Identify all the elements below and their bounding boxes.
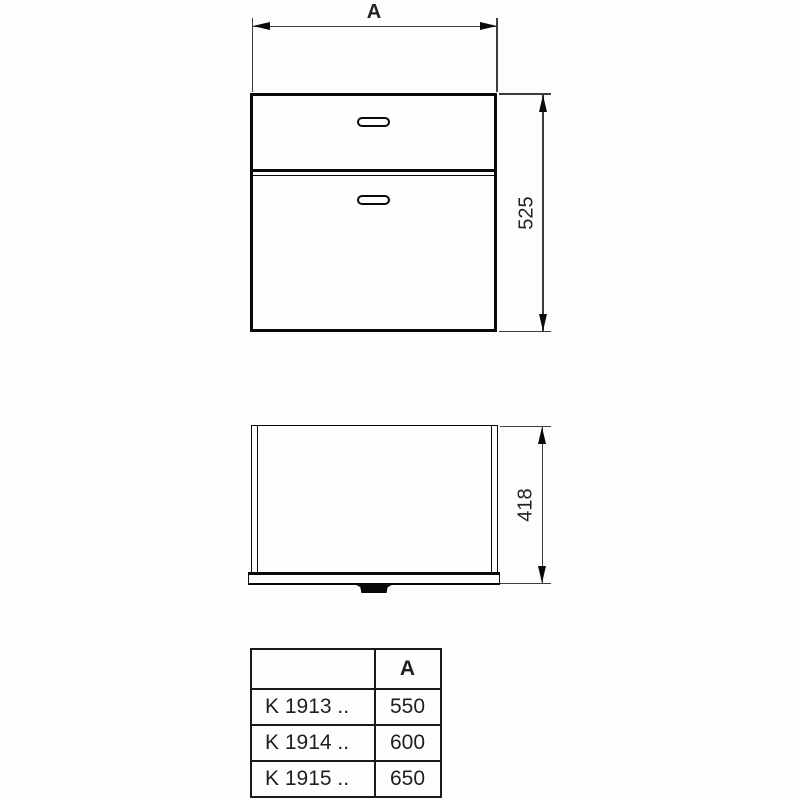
top-view-left-panel-line bbox=[257, 426, 259, 574]
technical-drawing: A 525 418 A K 1913 .. bbox=[0, 0, 800, 800]
value-cell: 600 bbox=[375, 725, 441, 761]
table-row: K 1914 .. 600 bbox=[251, 725, 441, 761]
arrowhead-left-icon bbox=[253, 22, 270, 30]
height-dimension-line bbox=[542, 95, 543, 331]
height-dimension-label: 525 bbox=[516, 196, 539, 229]
width-extension-line-left bbox=[252, 18, 253, 92]
drawer-divider-line bbox=[252, 169, 495, 172]
model-cell: K 1915 .. bbox=[251, 761, 375, 797]
width-dimension-label: A bbox=[367, 1, 381, 24]
top-view-front-panel bbox=[248, 572, 500, 585]
spec-table-header-model bbox=[251, 649, 375, 689]
table-row: K 1915 .. 650 bbox=[251, 761, 441, 797]
value-cell: 650 bbox=[375, 761, 441, 797]
model-cell: K 1914 .. bbox=[251, 725, 375, 761]
table-header-row: A bbox=[251, 649, 441, 689]
spec-table-header-a: A bbox=[375, 649, 441, 689]
front-view bbox=[250, 93, 497, 332]
top-view bbox=[251, 425, 498, 575]
top-view-right-panel-line bbox=[491, 426, 493, 574]
value-cell: 550 bbox=[375, 689, 441, 725]
table-row: K 1913 .. 550 bbox=[251, 689, 441, 725]
spec-table: A K 1913 .. 550 K 1914 .. 600 K 1915 .. … bbox=[250, 648, 442, 798]
width-dimension-line bbox=[253, 26, 497, 27]
drawer-handle-top bbox=[357, 117, 390, 127]
arrowhead-up-icon bbox=[539, 95, 547, 112]
arrowhead-right-icon bbox=[480, 22, 497, 30]
arrowhead-down-icon bbox=[538, 566, 546, 583]
model-cell: K 1913 .. bbox=[251, 689, 375, 725]
top-view-handle-tab bbox=[356, 585, 393, 594]
width-extension-line-right bbox=[496, 18, 497, 92]
drawer-handle-bottom bbox=[357, 195, 390, 205]
depth-dimension-line bbox=[542, 427, 543, 583]
arrowhead-down-icon bbox=[539, 314, 547, 331]
depth-extension-line-bottom bbox=[500, 583, 551, 584]
arrowhead-up-icon bbox=[538, 427, 546, 444]
depth-dimension-label: 418 bbox=[515, 488, 538, 521]
drawer-gap-line bbox=[252, 175, 495, 177]
